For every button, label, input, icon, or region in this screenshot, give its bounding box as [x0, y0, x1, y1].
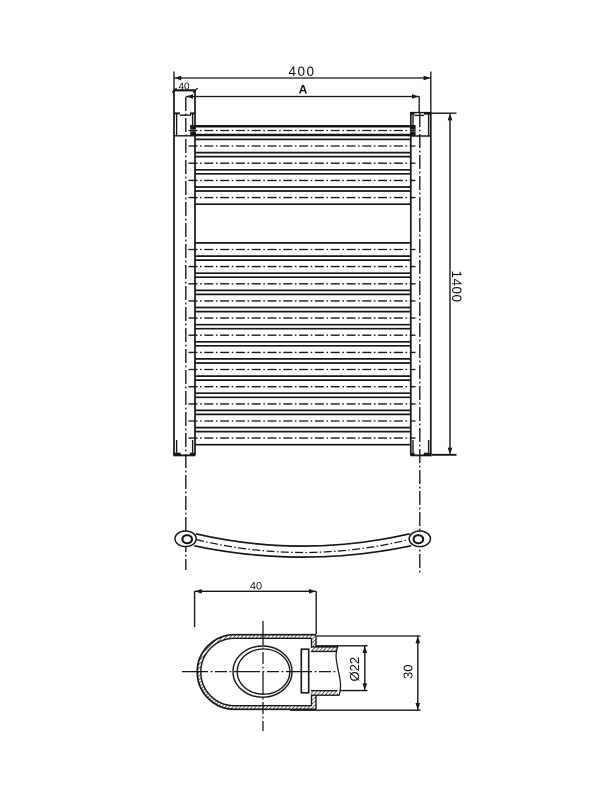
- svg-text:A: A: [299, 83, 308, 97]
- svg-text:Ø22: Ø22: [347, 657, 362, 682]
- svg-text:400: 400: [288, 64, 315, 79]
- svg-text:30: 30: [401, 665, 416, 679]
- svg-text:1400: 1400: [449, 271, 464, 303]
